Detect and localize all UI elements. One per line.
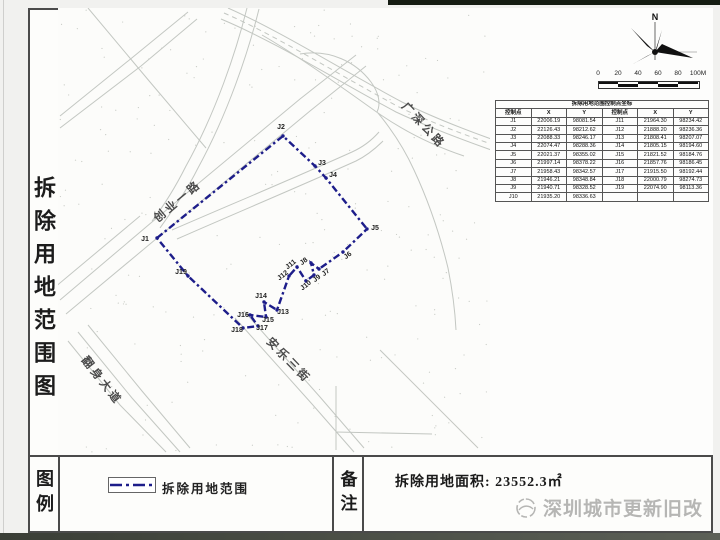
table-cell: 98348.84	[567, 176, 603, 184]
vertex-label-J11: J11	[284, 259, 297, 272]
coord-table-header: Y	[567, 109, 603, 117]
table-cell: 98192.44	[673, 168, 709, 176]
table-row: J122006.1998081.54J1121964.3098234.42	[496, 117, 709, 125]
table-cell: 22006.19	[531, 117, 567, 125]
scale-label: 20	[614, 70, 621, 77]
scale-bar: 020406080100M	[598, 70, 702, 92]
watermark-logo-icon	[514, 496, 538, 520]
table-cell: 98184.76	[673, 151, 709, 159]
legend-label: 图例	[31, 469, 57, 519]
table-cell: 21935.20	[531, 193, 567, 201]
table-cell: J6	[496, 159, 532, 167]
vertex-label-J13: J13	[277, 309, 289, 316]
table-cell: 21958.43	[531, 168, 567, 176]
table-cell: 22000.79	[638, 176, 674, 184]
table-cell: 22074.90	[638, 184, 674, 192]
note-label: 备注	[335, 470, 360, 518]
table-cell: 21805.15	[638, 142, 674, 150]
table-cell: J9	[496, 184, 532, 192]
vertex-label-J10: J10	[299, 279, 313, 292]
table-cell: 21946.21	[531, 176, 567, 184]
table-cell: J13	[602, 134, 638, 142]
vertex-label-J14: J14	[255, 293, 267, 300]
table-cell: 98288.36	[567, 142, 603, 150]
table-cell: 22074.47	[531, 142, 567, 150]
boundary-vertex-J2	[281, 134, 284, 137]
table-cell: 98186.45	[673, 159, 709, 167]
vertex-label-J3: J3	[318, 160, 326, 167]
table-cell: 98194.60	[673, 142, 709, 150]
photo-crop-bar-top	[388, 0, 720, 5]
table-cell	[638, 193, 674, 201]
boundary-vertex-J8	[309, 261, 312, 264]
coord-table-header: X	[531, 109, 567, 117]
table-cell: J19	[602, 184, 638, 192]
table-row: J621997.1498378.22J1621857.7698186.45	[496, 159, 709, 167]
road-label: 创业一路	[150, 177, 204, 226]
coord-table-header: Y	[673, 109, 709, 117]
table-cell: 98234.42	[673, 117, 709, 125]
remarks-cell: 拆除用地面积: 23552.3㎡ 深圳城市更新旧改	[362, 455, 713, 533]
table-row: J721958.4398342.57J1721915.5098192.44	[496, 168, 709, 176]
table-cell: J15	[602, 151, 638, 159]
map-canvas: 创业一路广深公路安乐三街翻身大道J1J2J3J4J5J6J7J8J9J10J11…	[58, 8, 490, 455]
scale-label: 60	[654, 70, 661, 77]
vertex-label-J17: J17	[256, 325, 268, 332]
demolition-scope-sheet: 拆除用地范围图	[0, 0, 720, 540]
table-cell: J7	[496, 168, 532, 176]
coord-table-header: X	[638, 109, 674, 117]
table-cell: 98378.22	[567, 159, 603, 167]
vertex-label-J16: J16	[237, 312, 249, 319]
coord-table-title: 拆除用地范围控制点坐标	[496, 101, 709, 109]
table-cell: J14	[602, 142, 638, 150]
legend-label-cell: 图例	[28, 455, 60, 533]
table-cell: J12	[602, 126, 638, 134]
table-cell: J4	[496, 142, 532, 150]
vertex-label-J19: J19	[175, 269, 187, 276]
table-row: J821946.2198348.84J1822000.7998274.73	[496, 176, 709, 184]
table-cell: J18	[602, 176, 638, 184]
table-row: J222126.4398212.62J1221888.2098236.36	[496, 126, 709, 134]
table-cell: 98236.36	[673, 126, 709, 134]
watermark-text: 深圳城市更新旧改	[543, 494, 703, 521]
boundary-vertex-J7	[317, 267, 320, 270]
note-label-cell: 备注	[332, 455, 362, 533]
sheet-title-column: 拆除用地范围图	[28, 8, 58, 455]
sheet-title: 拆除用地范围图	[27, 56, 59, 407]
boundary-line-symbol	[108, 477, 156, 493]
photo-edge-line	[3, 0, 4, 533]
table-cell: 98355.02	[567, 151, 603, 159]
map-area: 创业一路广深公路安乐三街翻身大道J1J2J3J4J5J6J7J8J9J10J11…	[58, 8, 490, 455]
vertex-label-J8: J8	[299, 257, 310, 267]
table-cell: 21964.30	[638, 117, 674, 125]
scale-label: 80	[674, 70, 681, 77]
scale-bar-frame	[598, 81, 700, 89]
table-row: J322088.3398246.17J1321808.4198207.07	[496, 134, 709, 142]
demolition-area-text: 拆除用地面积: 23552.3㎡	[395, 471, 563, 491]
vertex-label-J1: J1	[141, 236, 149, 243]
photo-crop-bar-bottom	[0, 533, 720, 540]
table-cell: J2	[496, 126, 532, 134]
scale-label: 0	[596, 70, 600, 77]
table-cell: J3	[496, 134, 532, 142]
boundary-vertex-J14	[262, 300, 265, 303]
table-cell: 98336.63	[567, 193, 603, 201]
table-cell: 98342.57	[567, 168, 603, 176]
table-row: J921940.7198328.52J1922074.9098113.36	[496, 184, 709, 192]
vertex-label-J18: J18	[231, 327, 243, 334]
table-cell: 98274.73	[673, 176, 709, 184]
table-cell: 21857.76	[638, 159, 674, 167]
topographic-roads	[58, 8, 490, 452]
north-arrow-icon	[605, 20, 705, 72]
table-cell: 98113.36	[673, 184, 709, 192]
table-cell	[673, 193, 709, 201]
coord-table-header: 控制点	[602, 109, 638, 117]
legend-cell: 拆除用地范围	[60, 455, 332, 533]
coord-table-header: 控制点	[496, 109, 532, 117]
table-cell: J16	[602, 159, 638, 167]
table-cell: J8	[496, 176, 532, 184]
scale-label: 40	[634, 70, 641, 77]
table-cell: J17	[602, 168, 638, 176]
vertex-label-J5: J5	[371, 225, 379, 232]
table-cell: 98246.17	[567, 134, 603, 142]
table-cell: 21808.41	[638, 134, 674, 142]
table-cell: 98207.07	[673, 134, 709, 142]
scale-bar-labels: 020406080100M	[598, 70, 698, 79]
vertex-label-J7: J7	[321, 268, 332, 278]
table-cell: 22088.33	[531, 134, 567, 142]
vertex-label-J4: J4	[329, 172, 337, 179]
vertex-label-J15: J15	[262, 317, 274, 324]
vertex-label-J2: J2	[277, 124, 285, 131]
table-row: J1021935.2098336.63	[496, 193, 709, 201]
boundary-vertex-J5	[365, 227, 368, 230]
table-cell: 21821.52	[638, 151, 674, 159]
boundary-vertex-J4	[324, 176, 327, 179]
boundary-vertex-J11	[295, 265, 298, 268]
table-cell: 21915.50	[638, 168, 674, 176]
table-cell: 98212.62	[567, 126, 603, 134]
table-row: J422074.4798288.36J1421805.1598194.60	[496, 142, 709, 150]
scale-label: 100M	[690, 70, 706, 77]
boundary-vertex-J3	[313, 164, 316, 167]
legend-item-label: 拆除用地范围	[162, 478, 249, 497]
right-panel: N 020406080100M 拆除用地范围控制点坐标控制点XY控制	[490, 8, 713, 455]
table-cell: J10	[496, 193, 532, 201]
table-cell: 98328.52	[567, 184, 603, 192]
coordinate-table: 拆除用地范围控制点坐标控制点XY控制点XYJ122006.1998081.54J…	[495, 100, 709, 202]
table-cell: 21997.14	[531, 159, 567, 167]
boundary-vertex-J1	[155, 236, 158, 239]
table-cell: J1	[496, 117, 532, 125]
table-cell	[602, 193, 638, 201]
table-cell: J11	[602, 117, 638, 125]
table-cell: 21940.71	[531, 184, 567, 192]
table-cell: 22021.37	[531, 151, 567, 159]
watermark: 深圳城市更新旧改	[514, 494, 703, 521]
table-cell: J5	[496, 151, 532, 159]
map-stipple	[60, 10, 488, 453]
table-cell: 21888.20	[638, 126, 674, 134]
table-cell: 98081.54	[567, 117, 603, 125]
table-cell: 22126.43	[531, 126, 567, 134]
table-row: J522021.3798355.02J1521821.5298184.76	[496, 151, 709, 159]
